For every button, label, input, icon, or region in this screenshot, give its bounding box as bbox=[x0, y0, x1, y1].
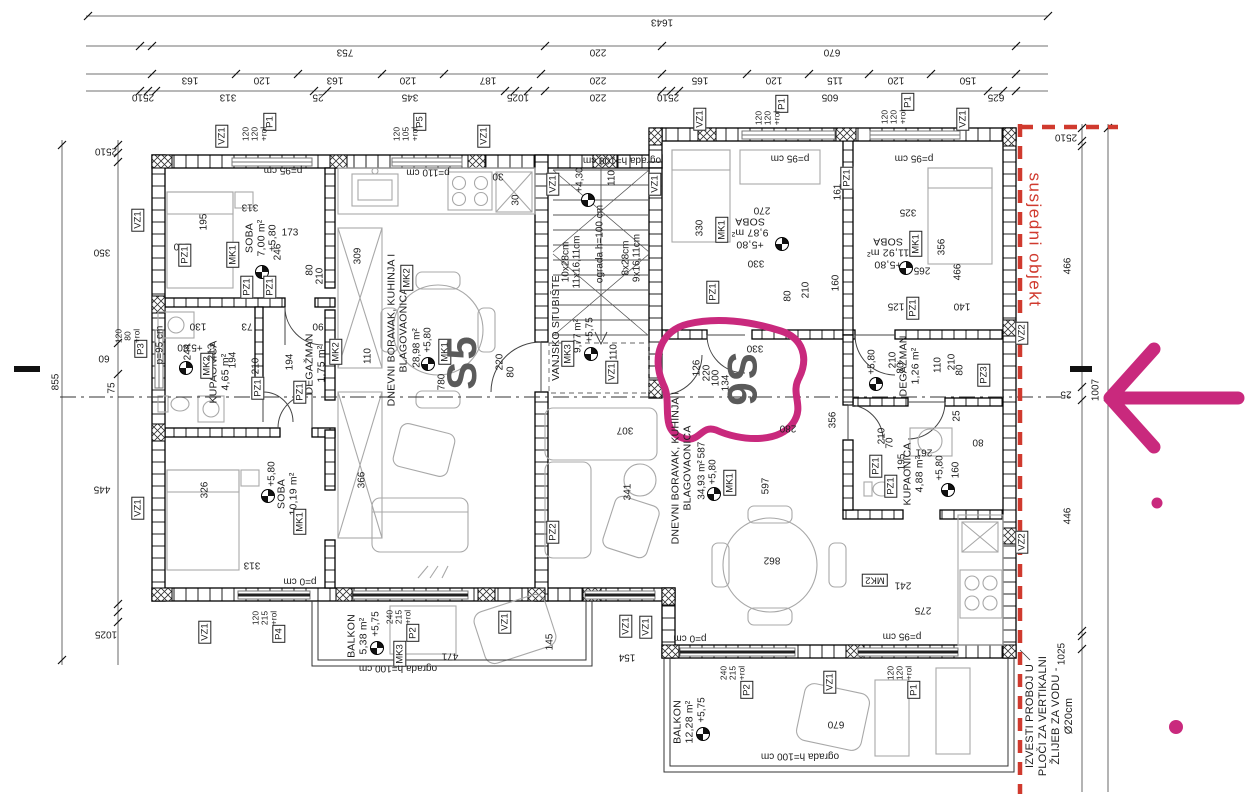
tag-pz3: PZ3 bbox=[977, 363, 990, 386]
dim-label: 80 bbox=[955, 364, 966, 375]
tag-mk1: MK1 bbox=[715, 217, 728, 243]
dim-label: 241 bbox=[895, 580, 912, 591]
dim-label: 345 bbox=[402, 92, 419, 103]
dim-label: 163 bbox=[327, 75, 344, 86]
level-marker bbox=[696, 727, 710, 741]
tag-pz1: PZ1 bbox=[706, 280, 719, 303]
dim-label: 120 bbox=[766, 75, 783, 86]
dim-label: 90 bbox=[312, 321, 323, 332]
dim-label: 120 bbox=[254, 75, 271, 86]
dim-label: 2510 bbox=[1055, 132, 1077, 143]
tag-pz1: PZ1 bbox=[840, 166, 853, 189]
window-size-p4: 120215+rol bbox=[252, 611, 279, 625]
dim-label: 307 bbox=[617, 425, 634, 436]
window-size-p3: 12080+rol bbox=[115, 329, 142, 343]
tag-vz1: VZ1 bbox=[693, 107, 706, 130]
dim-label: 195 bbox=[897, 454, 908, 471]
dim-label: 246 bbox=[273, 244, 284, 261]
level-label: +4,30 bbox=[575, 167, 586, 192]
tag-vz1: VZ1 bbox=[546, 172, 559, 195]
tag-vz1: VZ1 bbox=[131, 496, 144, 519]
tag-pz1: PZ1 bbox=[178, 243, 191, 266]
room-label-balkon1: BALKON5,38 m² bbox=[346, 614, 369, 658]
sill-note: p=0 cm bbox=[673, 633, 706, 644]
sill-note: p=110 cm bbox=[406, 167, 449, 178]
window-size-p5: 120105+rol bbox=[393, 127, 420, 141]
dim-label: 120 bbox=[888, 75, 905, 86]
dim-label: 2510 bbox=[95, 146, 117, 157]
tag-vz1: VZ1 bbox=[131, 208, 144, 231]
tag-pz1: PZ1 bbox=[869, 454, 882, 477]
dim-label: 115 bbox=[827, 75, 843, 86]
tag-mk1: MK1 bbox=[293, 509, 306, 535]
dim-label: 160 bbox=[831, 275, 842, 292]
drainage-note-line: IZVESTI PROBOJ U bbox=[1024, 664, 1036, 768]
dim-label: 125 bbox=[888, 301, 905, 312]
dim-label: 330 bbox=[695, 220, 706, 237]
unit-label-s5: S5 bbox=[439, 334, 485, 389]
tag-vz1: VZ1 bbox=[605, 360, 618, 383]
level-label: +5,80 bbox=[867, 349, 878, 374]
stair-note: 9x16,11cm bbox=[632, 234, 643, 282]
tag-vz2: VZ2 bbox=[1015, 530, 1028, 553]
dim-label: 110 bbox=[363, 348, 374, 364]
dim-label: 1025 bbox=[507, 92, 529, 103]
dim-label: 326 bbox=[200, 482, 211, 499]
dim-label: 670 bbox=[828, 719, 845, 730]
dim-label: 220 bbox=[495, 354, 506, 371]
dim-label: 356 bbox=[828, 412, 839, 429]
dim-label: 220 bbox=[590, 47, 607, 58]
dim-label: 130 bbox=[190, 321, 207, 332]
dim-label: 625 bbox=[988, 92, 1005, 103]
dim-label: 80 bbox=[783, 290, 794, 301]
dim-label: 154 bbox=[619, 652, 636, 663]
dim-label: 244 bbox=[183, 344, 194, 361]
pink-dot-large bbox=[1169, 720, 1183, 734]
tag-p1: P1 bbox=[907, 681, 920, 699]
dim-label: 220 bbox=[590, 75, 607, 86]
dim-label: 213 bbox=[207, 344, 218, 361]
level-label: +5,80 bbox=[423, 327, 434, 352]
drainage-note-line: ŽLIJEB ZA VODU - bbox=[1050, 667, 1062, 764]
tag-mk1: MK1 bbox=[723, 470, 736, 496]
dim-label: 110 bbox=[933, 357, 944, 373]
tag-pz1: PZ1 bbox=[251, 376, 264, 399]
dim-label: 309 bbox=[353, 248, 364, 265]
window-size-p2: 240215+rol bbox=[720, 666, 747, 680]
room-label-s6-dnevni: DNEVNI BORAVAK, KUHINJA IBLAGOVAONICA bbox=[670, 392, 693, 545]
dim-label: 210 bbox=[801, 282, 812, 299]
pink-dot-small bbox=[1152, 498, 1163, 509]
tag-mk2: MK2 bbox=[329, 339, 342, 365]
dim-label: 145 bbox=[545, 634, 556, 651]
dim-label: 60 bbox=[98, 353, 109, 364]
drainage-note-line: Ø20cm bbox=[1063, 698, 1075, 734]
tag-p2: P2 bbox=[740, 681, 753, 699]
dim-label: 210 bbox=[877, 428, 888, 445]
level-label: +5,75 bbox=[697, 697, 708, 722]
level-marker bbox=[775, 237, 789, 251]
dim-label: 366 bbox=[357, 472, 368, 489]
level-marker bbox=[584, 347, 598, 361]
level-marker bbox=[370, 641, 384, 655]
dim-label: 110 bbox=[609, 344, 620, 360]
sill-note: p=95 cm bbox=[771, 153, 810, 164]
dim-label: 1025 bbox=[95, 629, 117, 640]
tag-vz1: VZ1 bbox=[648, 172, 661, 195]
tag-mk1: MK1 bbox=[226, 242, 239, 268]
dim-label: 140 bbox=[954, 301, 971, 312]
dim-label: 25 bbox=[312, 92, 323, 103]
dim-label: 80 bbox=[506, 366, 517, 377]
sill-note: p=95 cm bbox=[883, 631, 922, 642]
dim-label: 210 bbox=[251, 358, 262, 375]
dim-label: 2510 bbox=[657, 92, 679, 103]
room-label-balkon2: BALKON12,28 m² bbox=[672, 700, 695, 744]
window-size-p1: 120120+rol bbox=[881, 110, 908, 124]
level-label: +5,75 bbox=[585, 317, 596, 342]
tag-vz1: VZ1 bbox=[619, 614, 632, 637]
level-label: +5,80 bbox=[708, 459, 719, 484]
tag-p1: P1 bbox=[901, 93, 914, 111]
tag-mk2: MK2 bbox=[400, 265, 413, 291]
dim-label: 350 bbox=[94, 247, 111, 258]
level-marker bbox=[179, 361, 193, 375]
stair-note: 10x28cm bbox=[561, 242, 572, 283]
railing-note: ograda h=100 cm bbox=[583, 155, 661, 166]
dim-label: 341 bbox=[623, 484, 634, 501]
dim-label: 73 bbox=[241, 321, 252, 332]
tag-vz1: VZ1 bbox=[498, 610, 511, 633]
level-marker bbox=[869, 377, 883, 391]
dim-label: 466 bbox=[1063, 258, 1074, 275]
level-marker bbox=[707, 487, 721, 501]
window-size-p1: 120120+rol bbox=[242, 127, 269, 141]
tag-pz1: PZ1 bbox=[240, 275, 253, 298]
dim-label: 265 bbox=[914, 265, 931, 276]
tag-pz1: PZ1 bbox=[263, 275, 276, 298]
unit-label-s6: S6 bbox=[719, 352, 765, 407]
stair-note: 11x16,11cm bbox=[572, 236, 583, 289]
dim-label: 150 bbox=[960, 75, 977, 86]
dim-label: 110 bbox=[607, 170, 618, 186]
dim-label: 471 bbox=[442, 651, 459, 662]
dim-label: 195 bbox=[199, 214, 210, 231]
dim-label: 605 bbox=[822, 92, 839, 103]
dim-label: 261 bbox=[916, 447, 933, 458]
level-label: +5,75 bbox=[371, 611, 382, 636]
stair-note: 8x28cm bbox=[621, 240, 632, 275]
window-size-p2: 240215+rol bbox=[386, 610, 413, 624]
pink-arrow bbox=[1110, 349, 1238, 447]
tag-vz1: VZ1 bbox=[215, 124, 228, 147]
dim-label: 210 bbox=[315, 268, 326, 285]
dim-label: 120 bbox=[400, 75, 417, 86]
tag-pz2: PZ2 bbox=[546, 520, 559, 543]
dim-label: 194 bbox=[228, 352, 239, 369]
dim-label: 356 bbox=[937, 239, 948, 256]
tag-vz1: VZ1 bbox=[823, 670, 836, 693]
dim-label: 280 bbox=[780, 423, 797, 434]
dim-label: 25 bbox=[952, 410, 963, 421]
tag-vz1: VZ1 bbox=[639, 615, 652, 638]
dim-label: 855 bbox=[51, 374, 62, 391]
level-marker bbox=[941, 483, 955, 497]
railing-note: ograda h=100 cm bbox=[761, 751, 839, 762]
level-label: +5,80 bbox=[267, 461, 278, 486]
dim-label: 194 bbox=[285, 354, 296, 371]
room-area: 34,93 m² bbox=[697, 460, 708, 499]
dim-label: 163 bbox=[182, 75, 199, 86]
dim-label: 187 bbox=[480, 75, 497, 86]
dim-label: 446 bbox=[1063, 508, 1074, 525]
tag-pz1: PZ1 bbox=[884, 474, 897, 497]
dim-label: 862 bbox=[764, 555, 781, 566]
railing-note: ograda h=100 cm bbox=[595, 205, 606, 283]
dim-label: 1025 bbox=[1057, 643, 1068, 665]
sill-note: p=95 cm bbox=[264, 165, 303, 176]
dim-label: 30 bbox=[492, 171, 503, 182]
level-label: +5,80 bbox=[935, 455, 946, 480]
dim-label: 2510 bbox=[132, 92, 154, 103]
tag-mk1: MK1 bbox=[909, 231, 922, 257]
tag-vz1: VZ1 bbox=[477, 124, 490, 147]
dim-label: 587 bbox=[697, 442, 708, 459]
tag-vz1: VZ1 bbox=[198, 620, 211, 643]
dim-label: 325 bbox=[900, 207, 917, 218]
dim-label: 753 bbox=[337, 47, 354, 58]
level-marker bbox=[261, 489, 275, 503]
level-marker bbox=[581, 193, 595, 207]
railing-note: ograda h=100 cm bbox=[359, 663, 437, 674]
dim-label: 220 bbox=[590, 92, 607, 103]
floor-plan-page: 1643 753 220 670 163 120 163 120 187 220… bbox=[0, 0, 1257, 796]
dim-label: 330 bbox=[748, 258, 765, 269]
tag-mk2: MK2 bbox=[862, 573, 888, 586]
room-area: 9,77 m² bbox=[573, 319, 584, 353]
dim-label: 313 bbox=[242, 202, 259, 213]
dim-label: 80 bbox=[896, 362, 907, 373]
level-marker bbox=[899, 261, 913, 275]
dim-label: 313 bbox=[220, 92, 237, 103]
room-label-s5-degazman: DEGAŽMAN1,75 m² bbox=[304, 333, 327, 394]
window-size-p1: 120120+rol bbox=[755, 111, 782, 125]
tag-p4: P4 bbox=[272, 625, 285, 643]
drainage-note-line: PLOČI ZA VERTIKALNI bbox=[1037, 656, 1049, 776]
room-label-s6-soba1: +5,809,87 m²SOBA bbox=[732, 215, 769, 250]
tag-vz2: VZ2 bbox=[1015, 321, 1028, 344]
dim-label: 313 bbox=[244, 560, 261, 571]
dim-label: 1007 bbox=[1091, 379, 1102, 401]
dim-label: 25 bbox=[1060, 389, 1071, 400]
tag-pz1: PZ1 bbox=[293, 380, 306, 403]
dim-label: 165 bbox=[692, 75, 709, 86]
dim-label: 30 bbox=[511, 194, 522, 205]
dim-label: 173 bbox=[282, 228, 299, 239]
level-marker bbox=[421, 357, 435, 371]
sill-note: p=0 cm bbox=[283, 576, 316, 587]
neighbor-object-label: susjedni objekt bbox=[1025, 173, 1044, 308]
dim-label: 466 bbox=[953, 264, 964, 281]
window-size-p1: 120120+rol bbox=[887, 666, 914, 680]
dim-label: 445 bbox=[94, 484, 111, 495]
dim-label: 80 bbox=[972, 437, 983, 448]
dim-label: 270 bbox=[754, 205, 771, 216]
dim-label: 1643 bbox=[651, 17, 673, 28]
sill-note: p=95 cm bbox=[895, 153, 934, 164]
windows bbox=[155, 131, 960, 656]
dim-label: 275 bbox=[915, 605, 932, 616]
tag-vz1: VZ1 bbox=[956, 107, 969, 130]
dim-label: 160 bbox=[951, 462, 962, 479]
tag-pz1: PZ1 bbox=[906, 296, 919, 319]
sill-note: p=95 cm bbox=[155, 326, 166, 365]
dim-label: 75 bbox=[107, 382, 118, 393]
tag-p2: P2 bbox=[406, 624, 419, 642]
dim-label: 597 bbox=[761, 478, 772, 495]
dim-label: 670 bbox=[824, 47, 841, 58]
